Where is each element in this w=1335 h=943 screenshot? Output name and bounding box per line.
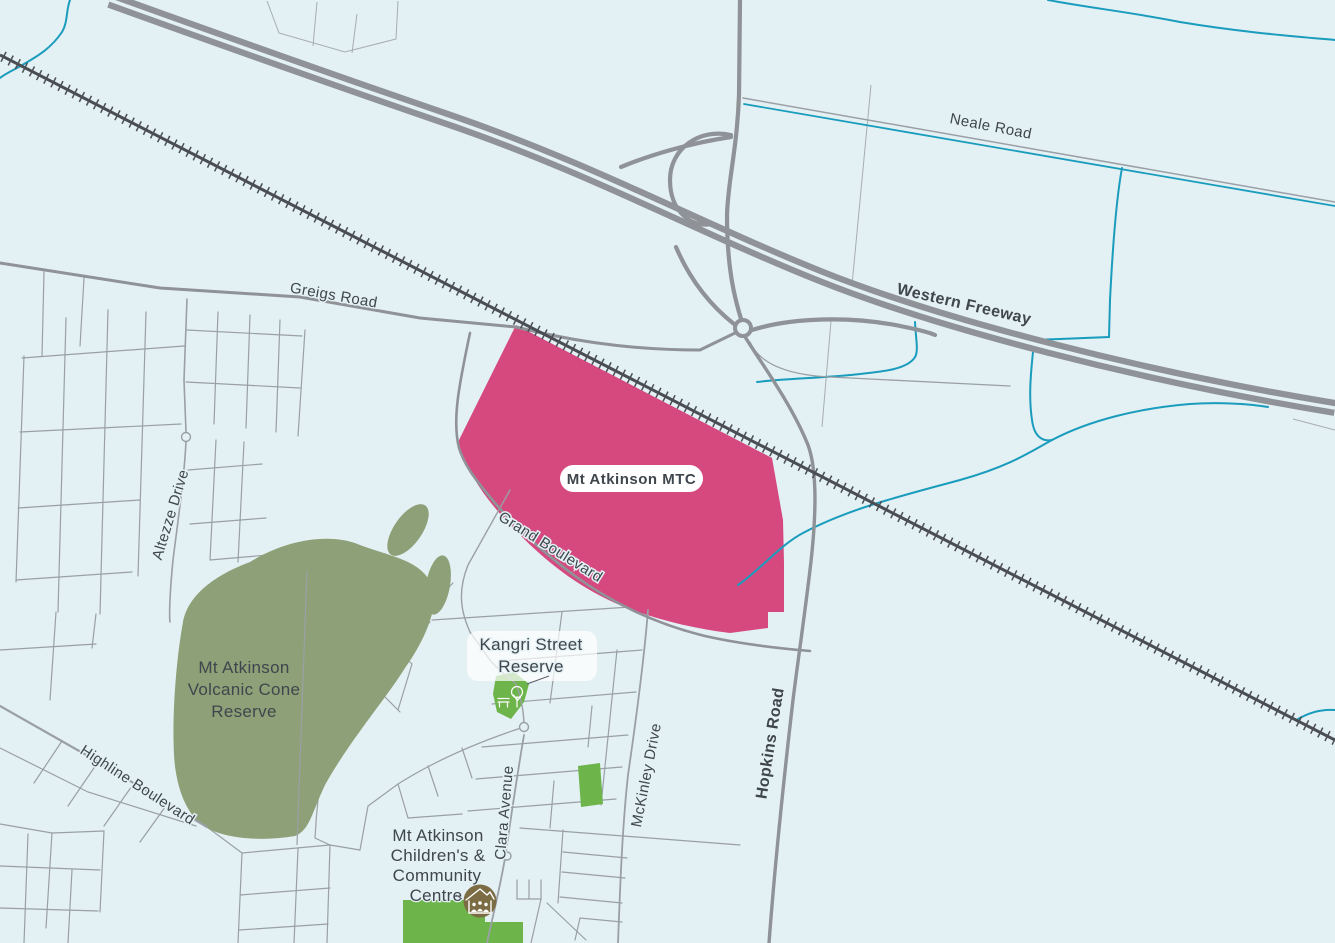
mtc-label: Mt Atkinson MTC [567, 471, 696, 488]
small-park [578, 763, 603, 807]
interchange-roundabout [735, 320, 751, 336]
map-canvas[interactable]: Neale Road Western Freeway Greigs Road G… [0, 0, 1335, 943]
svg-text:Community: Community [393, 866, 482, 885]
svg-text:Mt Atkinson: Mt Atkinson [198, 658, 289, 677]
mtc-label-pill: Mt Atkinson MTC [560, 465, 703, 492]
bottom-park-b [445, 922, 523, 943]
svg-text:Kangri Street: Kangri Street [479, 635, 582, 654]
svg-text:Centre: Centre [410, 886, 463, 905]
svg-text:Mt Atkinson: Mt Atkinson [392, 826, 483, 845]
svg-text:Reserve: Reserve [211, 702, 276, 721]
svg-text:Children's &: Children's & [391, 846, 486, 865]
community-centre-icon [464, 885, 497, 918]
svg-text:Reserve: Reserve [498, 657, 563, 676]
kangri-reserve-label: Kangri Street Reserve [467, 631, 597, 684]
svg-text:Volcanic Cone: Volcanic Cone [188, 680, 301, 699]
